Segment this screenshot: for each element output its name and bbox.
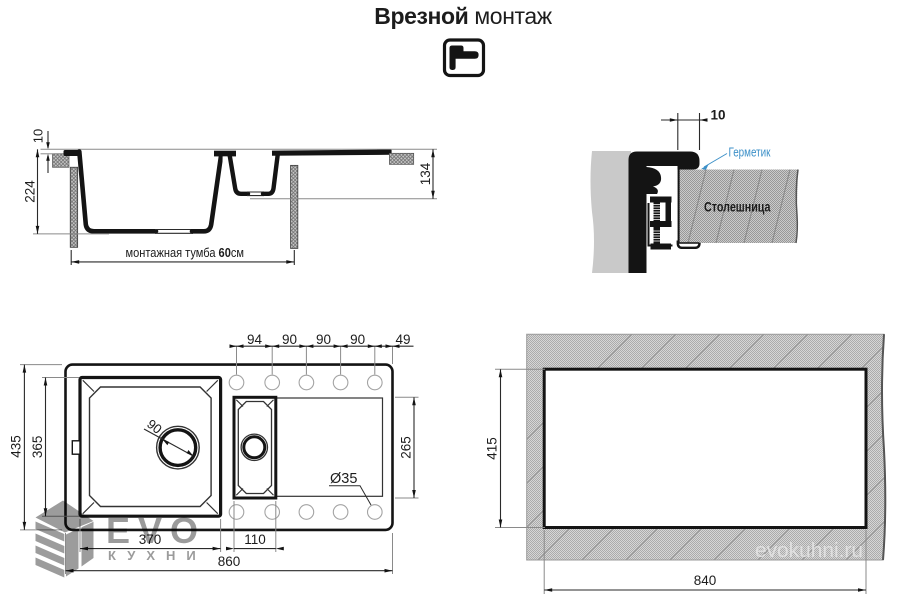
svg-text:49: 49 bbox=[395, 332, 410, 347]
svg-text:90: 90 bbox=[350, 332, 365, 347]
svg-text:435: 435 bbox=[9, 435, 24, 458]
svg-text:90: 90 bbox=[282, 332, 297, 347]
svg-text:860: 860 bbox=[218, 554, 241, 569]
svg-text:Герметик: Герметик bbox=[729, 146, 771, 160]
svg-text:134: 134 bbox=[418, 162, 433, 185]
svg-text:Столешница: Столешница bbox=[704, 199, 771, 215]
svg-text:10: 10 bbox=[710, 108, 725, 123]
svg-text:Врезной монтаж: Врезной монтаж bbox=[374, 3, 553, 29]
svg-text:840: 840 bbox=[694, 573, 717, 588]
svg-text:монтажная тумба 60см: монтажная тумба 60см bbox=[126, 245, 245, 260]
svg-text:224: 224 bbox=[23, 180, 38, 203]
svg-text:КУХНИ: КУХНИ bbox=[108, 548, 207, 563]
svg-text:94: 94 bbox=[247, 332, 263, 347]
svg-text:10: 10 bbox=[31, 129, 46, 143]
svg-text:415: 415 bbox=[485, 437, 500, 460]
svg-text:265: 265 bbox=[399, 436, 414, 459]
svg-text:110: 110 bbox=[244, 532, 266, 547]
svg-text:Ø35: Ø35 bbox=[330, 471, 357, 487]
svg-text:365: 365 bbox=[30, 436, 45, 459]
svg-text:EVO: EVO bbox=[106, 510, 206, 551]
svg-text:90: 90 bbox=[316, 332, 331, 347]
svg-text:evokuhni.ru: evokuhni.ru bbox=[755, 540, 863, 562]
